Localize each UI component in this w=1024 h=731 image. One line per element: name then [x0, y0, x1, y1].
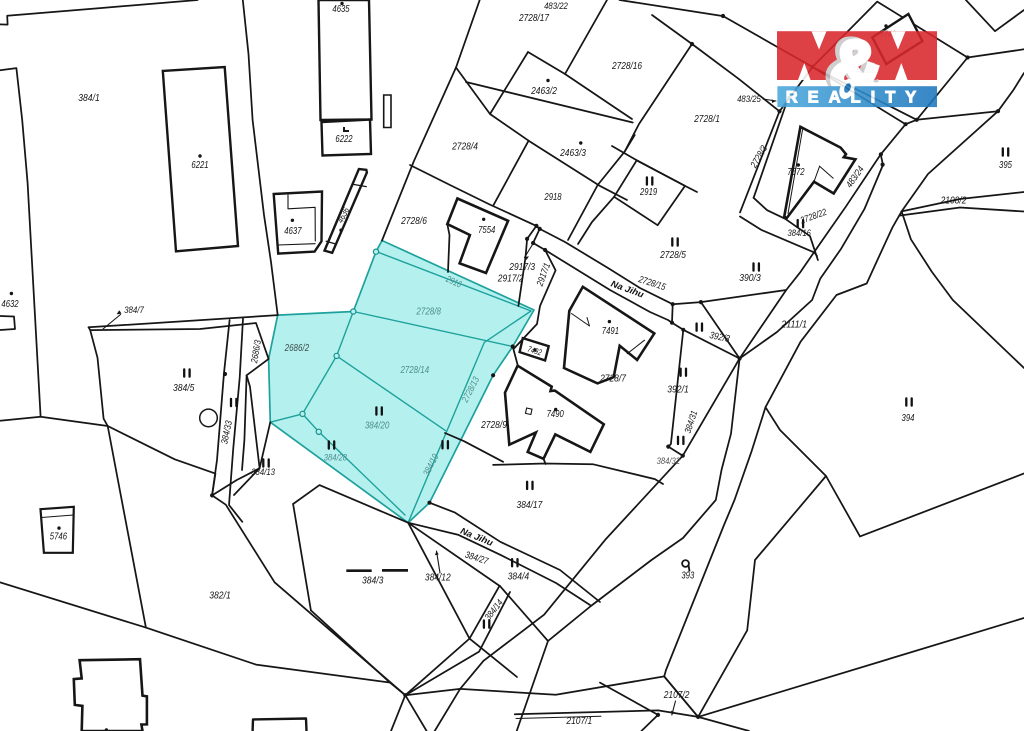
svg-text:382/1: 382/1	[209, 591, 231, 602]
svg-text:2728/17: 2728/17	[518, 13, 550, 24]
svg-text:2728/7: 2728/7	[599, 374, 627, 385]
svg-text:2919: 2919	[639, 187, 657, 198]
svg-text:2108/2: 2108/2	[940, 196, 967, 207]
svg-text:384/12: 384/12	[425, 573, 451, 584]
svg-text:2463/2: 2463/2	[530, 86, 557, 97]
svg-text:2917/2: 2917/2	[497, 274, 524, 285]
svg-text:2917/3: 2917/3	[508, 262, 535, 273]
svg-text:384/3: 384/3	[362, 576, 384, 587]
svg-text:7672: 7672	[787, 167, 804, 178]
svg-text:7554: 7554	[478, 225, 495, 236]
svg-text:2107/1: 2107/1	[566, 716, 593, 727]
svg-text:2728/6: 2728/6	[400, 216, 427, 227]
svg-text:384/17: 384/17	[517, 500, 544, 511]
svg-text:384/7: 384/7	[124, 305, 144, 316]
svg-text:394: 394	[902, 413, 915, 424]
svg-text:4635: 4635	[332, 4, 349, 15]
svg-text:7490: 7490	[547, 409, 564, 420]
svg-text:REALITY: REALITY	[786, 89, 927, 107]
svg-text:6222: 6222	[335, 134, 352, 145]
svg-text:483/22: 483/22	[544, 1, 568, 12]
svg-text:384/1: 384/1	[78, 93, 100, 104]
svg-text:4632: 4632	[1, 299, 18, 310]
svg-text:2728/9: 2728/9	[480, 420, 507, 431]
svg-text:2728/5: 2728/5	[659, 250, 686, 261]
svg-text:2107/2: 2107/2	[663, 690, 690, 701]
svg-text:2728/16: 2728/16	[611, 61, 642, 72]
svg-text:384/32: 384/32	[657, 456, 681, 466]
svg-text:393: 393	[681, 571, 694, 582]
svg-text:392/1: 392/1	[667, 385, 689, 396]
svg-text:2728/1: 2728/1	[693, 114, 720, 125]
svg-text:384/5: 384/5	[173, 383, 195, 394]
svg-text:4637: 4637	[284, 226, 302, 237]
svg-text:2111/1: 2111/1	[780, 320, 807, 331]
svg-text:2728/8: 2728/8	[416, 307, 442, 318]
svg-text:384/20: 384/20	[365, 421, 390, 432]
svg-text:2918: 2918	[544, 192, 562, 203]
svg-text:2728/4: 2728/4	[451, 142, 478, 153]
svg-text:384/28: 384/28	[324, 453, 348, 463]
svg-text:384/16: 384/16	[788, 228, 812, 238]
svg-text:2463/3: 2463/3	[559, 148, 586, 159]
svg-text:483/25: 483/25	[737, 94, 761, 105]
svg-text:395: 395	[999, 160, 1012, 171]
svg-text:384/4: 384/4	[508, 571, 530, 582]
svg-text:384/13: 384/13	[251, 467, 275, 478]
svg-text:7491: 7491	[602, 326, 619, 337]
svg-text:2728/14: 2728/14	[400, 365, 430, 376]
svg-text:2686/2: 2686/2	[284, 343, 310, 354]
svg-text:6221: 6221	[191, 160, 208, 171]
svg-text:5746: 5746	[50, 532, 67, 543]
svg-text:390/3: 390/3	[739, 273, 761, 284]
